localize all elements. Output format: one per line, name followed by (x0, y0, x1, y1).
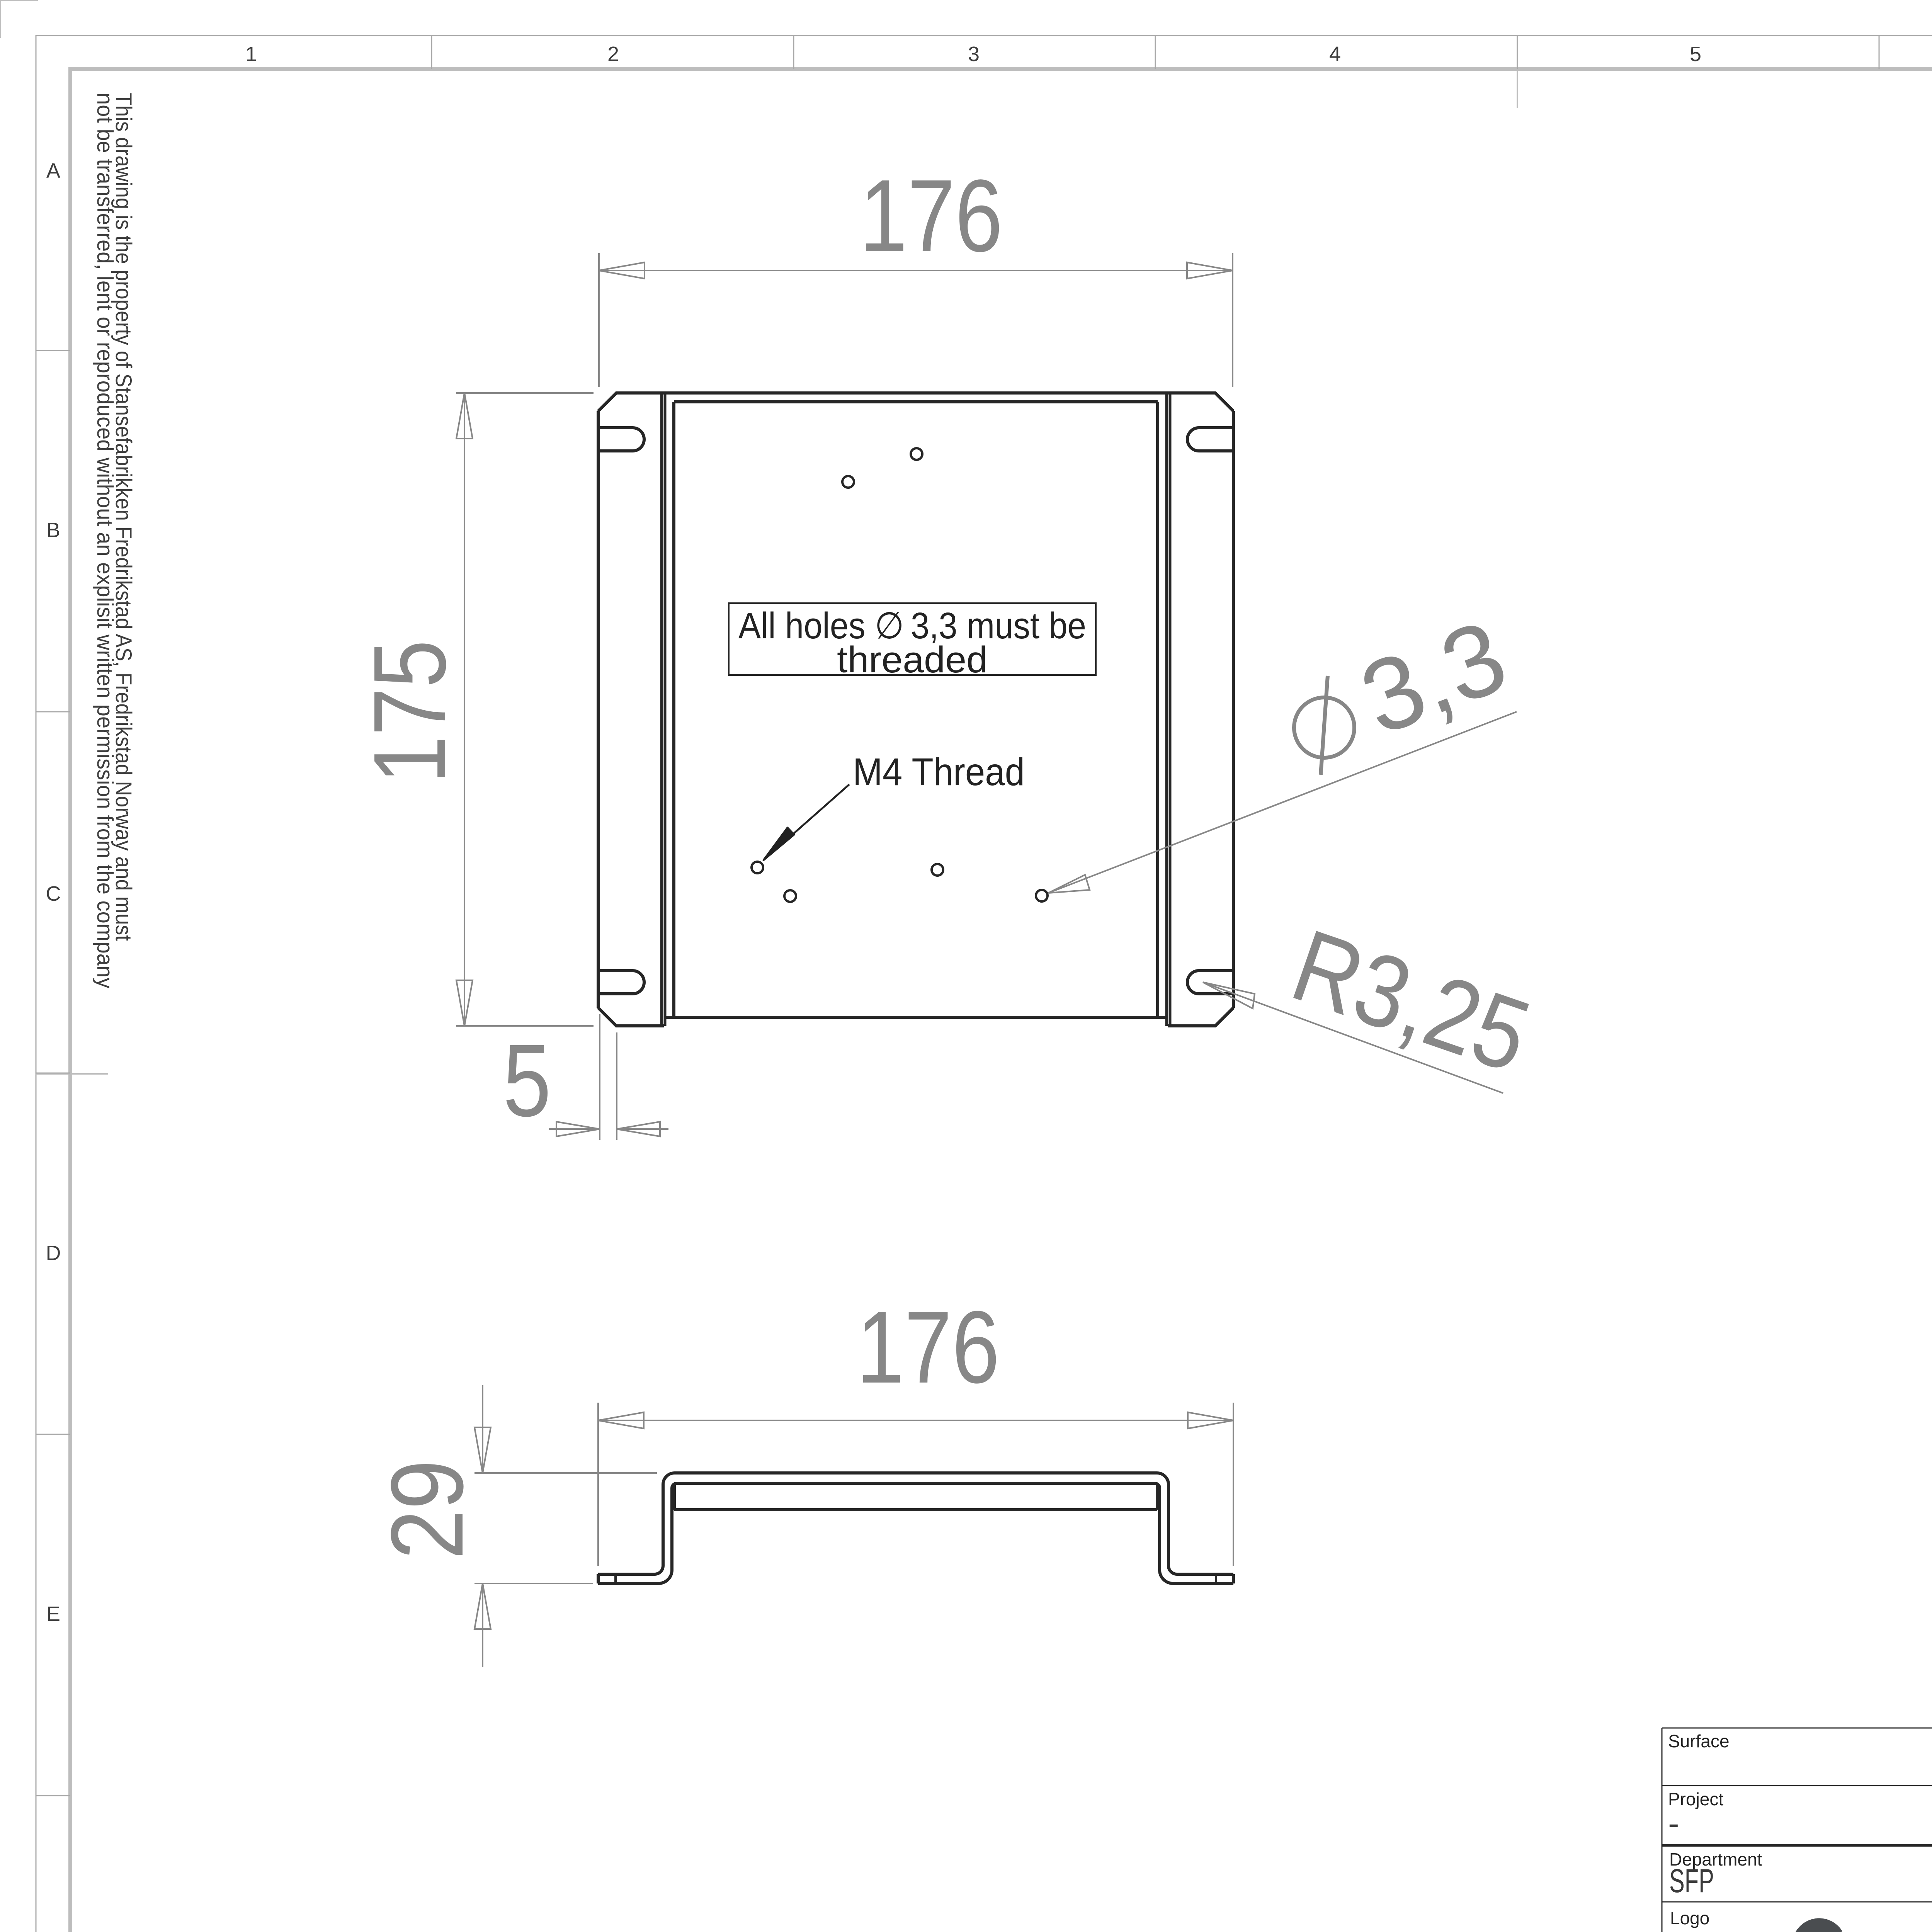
svg-text:176: 176 (857, 1290, 1000, 1405)
svg-text:Logo: Logo (1670, 1908, 1709, 1928)
svg-text:5: 5 (1690, 43, 1701, 66)
svg-text:-: - (1668, 1805, 1679, 1842)
svg-text:threaded: threaded (837, 639, 988, 680)
svg-text:A: A (46, 159, 60, 182)
svg-text:D: D (46, 1242, 61, 1265)
svg-text:3: 3 (968, 43, 980, 66)
svg-text:SFP: SFP (1669, 1862, 1714, 1900)
svg-text:C: C (46, 882, 61, 905)
svg-text:Surface: Surface (1668, 1731, 1730, 1751)
svg-text:2: 2 (607, 43, 619, 66)
svg-text:4: 4 (1329, 43, 1341, 66)
svg-text:175: 175 (352, 640, 467, 784)
svg-text:E: E (46, 1602, 60, 1626)
svg-text:1: 1 (245, 43, 257, 66)
svg-text:B: B (46, 519, 60, 542)
svg-text:176: 176 (860, 158, 1003, 273)
svg-text:5: 5 (503, 1023, 551, 1138)
svg-text:M4 Thread: M4 Thread (853, 750, 1025, 794)
svg-text:not be transferred, lent or re: not be transferred, lent or reproduced w… (92, 93, 117, 988)
svg-text:29: 29 (370, 1460, 485, 1560)
